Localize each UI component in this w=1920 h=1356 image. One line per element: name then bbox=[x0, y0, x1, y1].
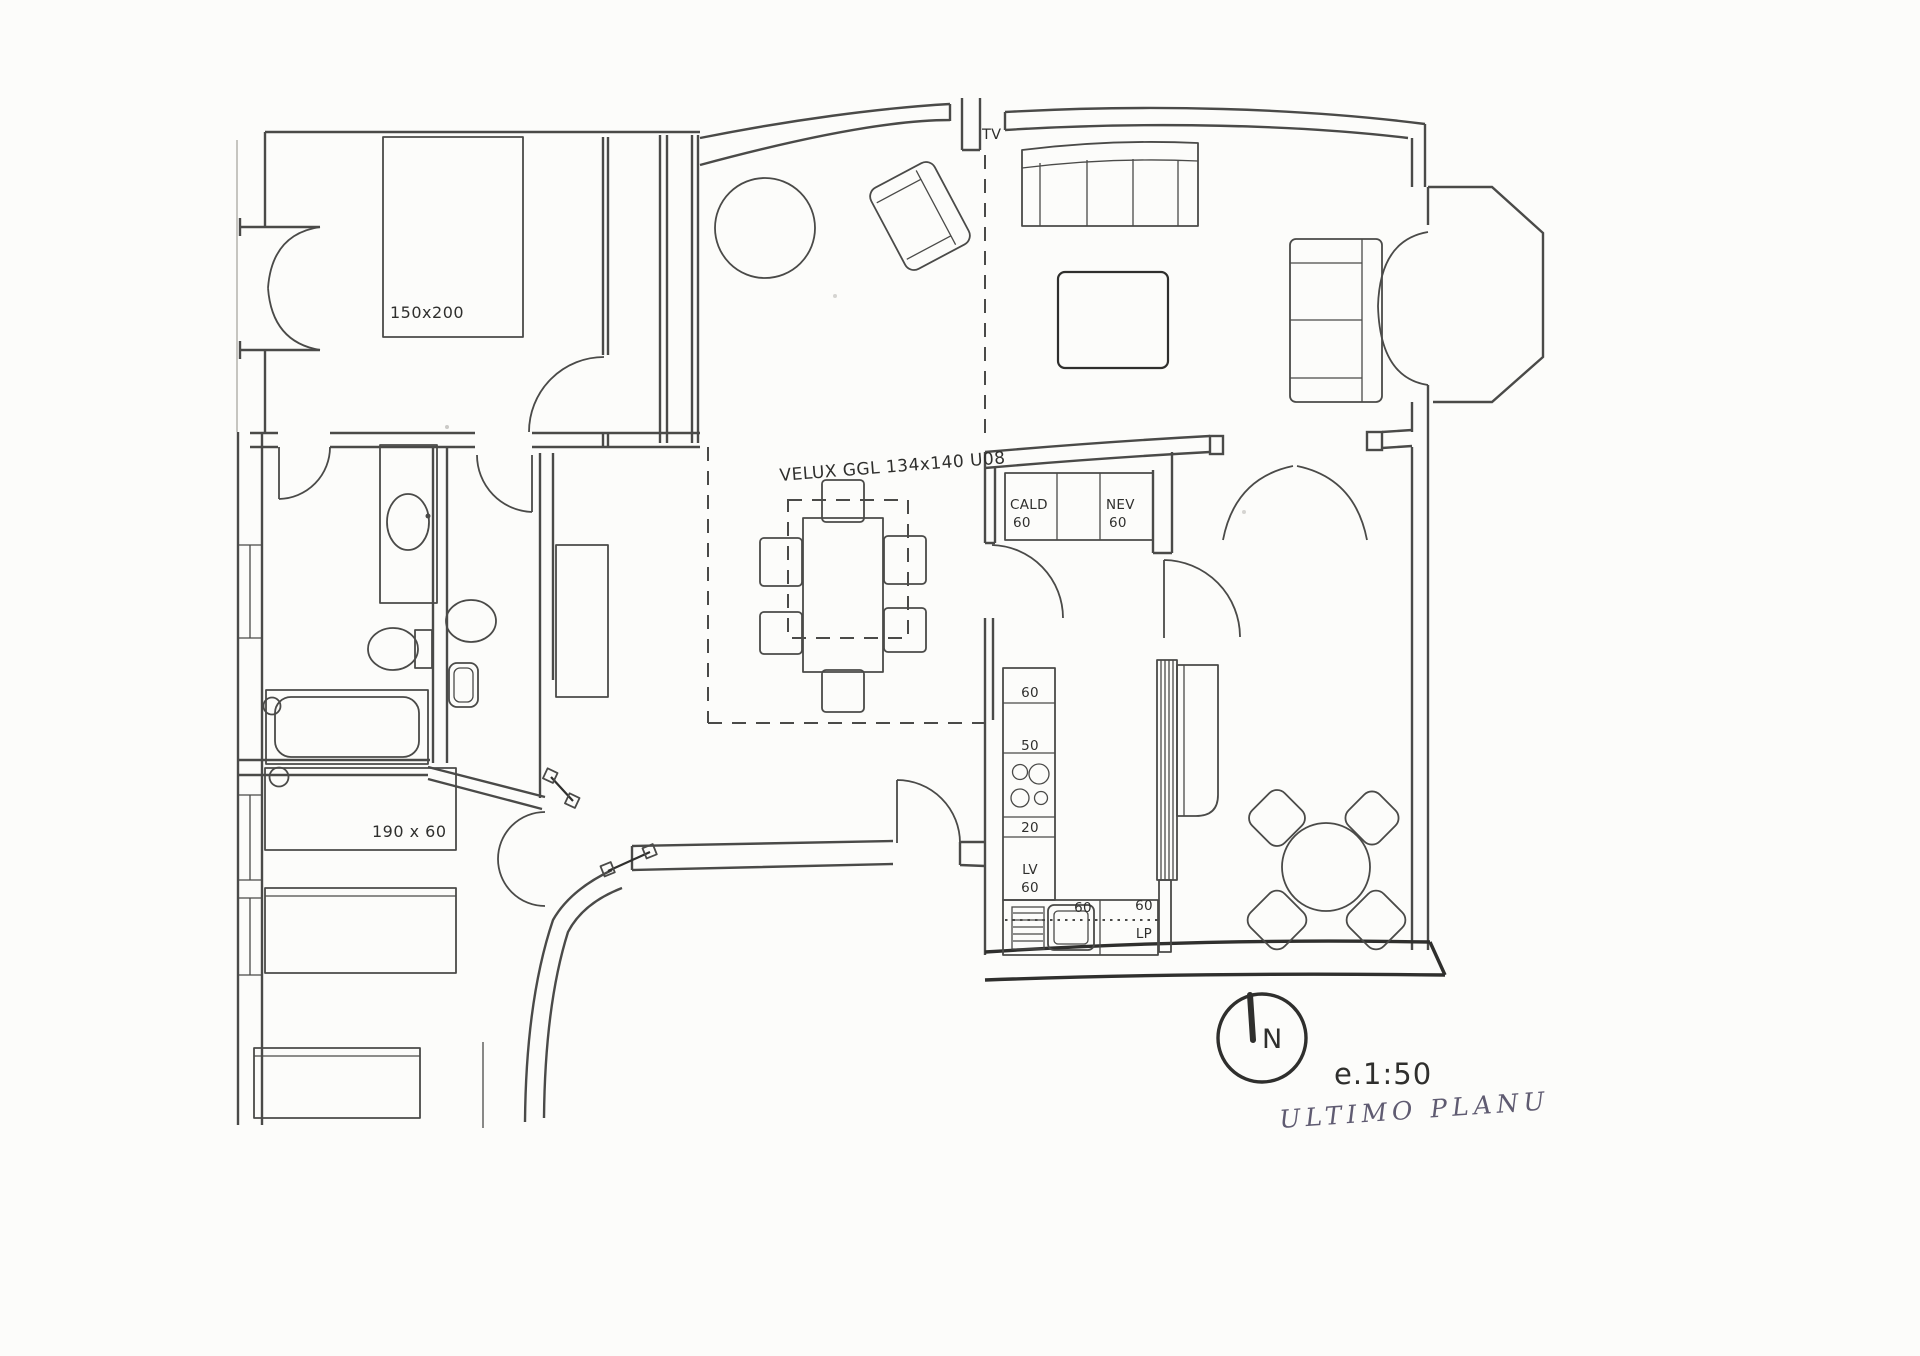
cald-label: CALD bbox=[1010, 497, 1048, 513]
wall-studio-top bbox=[700, 104, 950, 165]
bed-master-label: 150x200 bbox=[390, 303, 464, 322]
bathtub-inner bbox=[275, 697, 419, 757]
bar-counter bbox=[1177, 665, 1218, 816]
velux-label: VELUX GGL 134x140 U08 bbox=[779, 448, 1007, 486]
furniture bbox=[254, 137, 1410, 1118]
chair bbox=[1342, 886, 1410, 954]
entry-jamb-left bbox=[1210, 436, 1223, 454]
chair bbox=[1243, 886, 1311, 954]
doors bbox=[268, 227, 1428, 906]
burner bbox=[1013, 765, 1028, 780]
bed-child-label: 190 x 60 bbox=[372, 822, 447, 841]
row-size-label: 60 bbox=[1135, 898, 1153, 914]
hall-closet bbox=[556, 545, 608, 697]
scanned-floor-plan-page: 150x200 190 x 60 VELUX GGL 134x140 U08 T… bbox=[0, 0, 1920, 1356]
dining-chair bbox=[884, 536, 926, 584]
breakfast-set bbox=[1243, 785, 1410, 953]
wall-right-upper bbox=[1412, 124, 1425, 187]
chair bbox=[1341, 787, 1403, 849]
compass-needle bbox=[1250, 995, 1253, 1040]
title-block: N e.1:50 ULTIMO PLANU bbox=[1218, 994, 1550, 1134]
dining-chair bbox=[822, 670, 864, 712]
bathroom-door bbox=[279, 447, 330, 499]
dining-set bbox=[760, 480, 926, 712]
wall-fixture-dot bbox=[270, 768, 289, 787]
bedroom-east-door-swing bbox=[529, 357, 604, 432]
wall-living-top bbox=[1005, 108, 1425, 138]
wall-left-band bbox=[238, 432, 262, 1125]
lp-label: LP bbox=[1136, 926, 1152, 942]
burner bbox=[1029, 764, 1049, 784]
cald-size-label: 60 bbox=[1013, 515, 1031, 531]
dining-chair bbox=[760, 612, 802, 654]
round-table bbox=[1282, 823, 1370, 911]
wc-door bbox=[477, 455, 532, 512]
sofa-top bbox=[1022, 142, 1198, 226]
wc-sink-inner bbox=[454, 668, 473, 702]
wall-bathroom-east bbox=[433, 447, 447, 763]
chimney-duct-walls bbox=[660, 135, 698, 443]
compass-n-label: N bbox=[1262, 1024, 1282, 1055]
dining-chair bbox=[760, 538, 802, 586]
bathtub bbox=[266, 690, 428, 764]
stair-curve-door-leaf bbox=[600, 844, 656, 876]
bay-french-doors bbox=[1378, 232, 1428, 385]
kids-room-door-leaf bbox=[543, 768, 580, 808]
velux-skylight-outline bbox=[788, 500, 908, 638]
french-door-niche bbox=[240, 218, 320, 359]
loft-edge-dashed bbox=[708, 447, 985, 723]
tv-label: TV bbox=[981, 127, 1001, 143]
coffee-table bbox=[1058, 272, 1168, 368]
french-door-west-swing bbox=[268, 227, 320, 350]
dining-chair bbox=[884, 608, 926, 652]
wall-bottom-outer bbox=[985, 974, 1445, 980]
wall-wc-east bbox=[540, 453, 553, 798]
scale-label: e.1:50 bbox=[1334, 1057, 1432, 1091]
wall-diagonal bbox=[428, 767, 545, 809]
bathroom-fixtures bbox=[264, 445, 497, 787]
kitchen-door-swing bbox=[992, 545, 1063, 618]
wall-right-lower bbox=[1412, 402, 1428, 950]
burner bbox=[1035, 792, 1048, 805]
right-room-double-door bbox=[1223, 466, 1367, 540]
scan-artifacts bbox=[237, 140, 1246, 514]
floor-plan-drawing: 150x200 190 x 60 VELUX GGL 134x140 U08 T… bbox=[0, 0, 1920, 1356]
stair-curve-outer bbox=[525, 870, 612, 1122]
stair-curve-inner bbox=[544, 888, 622, 1118]
chair bbox=[1244, 785, 1309, 850]
wall-living-bottom bbox=[985, 430, 1412, 468]
wall-dining-south bbox=[632, 841, 985, 870]
kids-room-door-swing bbox=[498, 812, 545, 906]
right-room-side-door bbox=[1164, 560, 1240, 638]
sink-size-label: 60 bbox=[1074, 900, 1092, 916]
bathroom-sink bbox=[387, 494, 429, 550]
handwritten-note: ULTIMO PLANU bbox=[1278, 1086, 1550, 1134]
nev-size-label: 60 bbox=[1109, 515, 1127, 531]
wall-kitchen-stub bbox=[1153, 452, 1172, 553]
wall-bedroom-east bbox=[603, 137, 608, 447]
dining-table bbox=[803, 518, 883, 672]
wall-kitchen-west bbox=[985, 452, 995, 955]
nev-label: NEV bbox=[1106, 497, 1135, 513]
wall-bedroom-bottom bbox=[250, 433, 700, 447]
faucet-dot bbox=[426, 514, 431, 519]
burner bbox=[1011, 789, 1029, 807]
entry-jamb-right bbox=[1367, 432, 1382, 450]
toilet-bowl bbox=[368, 628, 418, 670]
tv-niche-wall bbox=[962, 98, 980, 150]
lv-size-label: 60 bbox=[1021, 880, 1039, 896]
lv-label: LV bbox=[1022, 862, 1038, 878]
wall-bottom-corner bbox=[1430, 942, 1445, 975]
unit-50-label: 50 bbox=[1021, 738, 1039, 754]
sofa-right bbox=[1290, 239, 1382, 402]
studio-round-table bbox=[715, 178, 815, 278]
armchair bbox=[867, 158, 974, 273]
unit-20-label: 20 bbox=[1021, 820, 1039, 836]
unit-60-label: 60 bbox=[1021, 685, 1039, 701]
bay-window bbox=[1428, 187, 1543, 402]
bed-child-2 bbox=[265, 888, 456, 973]
dining-south-door bbox=[897, 780, 960, 843]
annotations: 150x200 190 x 60 VELUX GGL 134x140 U08 T… bbox=[372, 127, 1153, 942]
wc-toilet bbox=[446, 600, 496, 642]
bed-child-3 bbox=[254, 1048, 420, 1118]
peninsula-counter bbox=[1157, 660, 1177, 952]
